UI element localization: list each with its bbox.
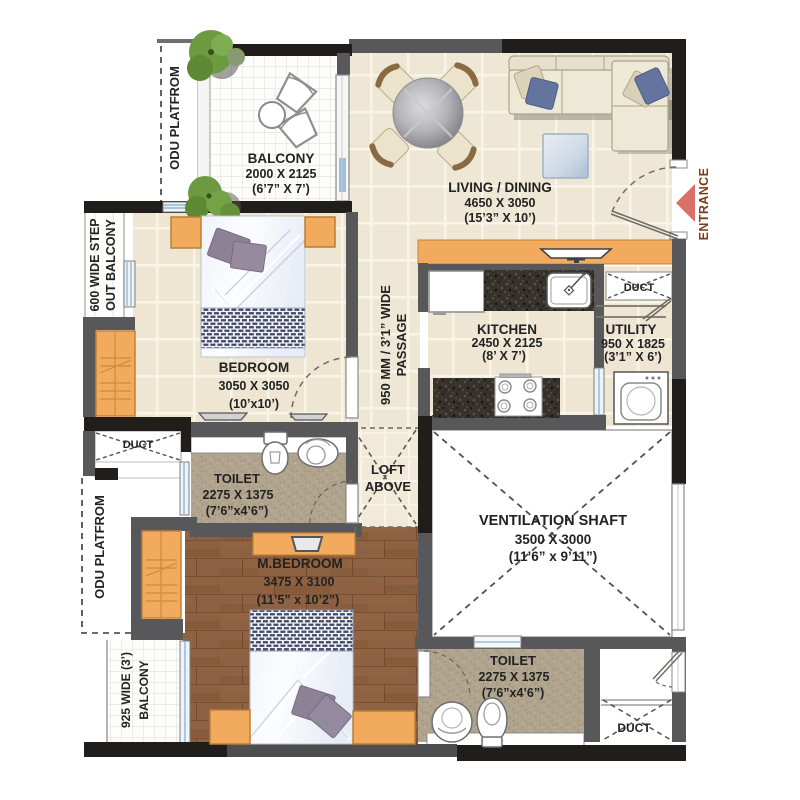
svg-text:TOILET: TOILET <box>214 471 260 486</box>
svg-text:(7’6”x4’6”): (7’6”x4’6”) <box>482 686 545 700</box>
svg-text:UTILITY: UTILITY <box>606 322 657 337</box>
svg-text:(11’6” x 9’11”): (11’6” x 9’11”) <box>509 549 598 564</box>
svg-text:950 X 1825: 950 X 1825 <box>601 337 665 351</box>
svg-text:DUCT: DUCT <box>123 439 154 451</box>
svg-text:PASSAGE: PASSAGE <box>394 313 409 376</box>
svg-text:LIVING / DINING: LIVING / DINING <box>448 180 552 195</box>
svg-text:OUT BALCONY: OUT BALCONY <box>104 219 118 311</box>
svg-text:(3’1” X 6’): (3’1” X 6’) <box>604 350 662 364</box>
svg-text:(7’6”x4’6”): (7’6”x4’6”) <box>206 504 269 518</box>
svg-text:4650 X 3050: 4650 X 3050 <box>465 196 536 210</box>
svg-text:ODU PLATFROM: ODU PLATFROM <box>92 495 107 599</box>
svg-text:ENTRANCE: ENTRANCE <box>697 168 711 241</box>
svg-text:(10’x10’): (10’x10’) <box>229 397 279 411</box>
svg-text:600 WIDE STEP: 600 WIDE STEP <box>88 218 102 311</box>
svg-text:(6’7” X 7’): (6’7” X 7’) <box>252 182 310 196</box>
svg-text:BALCONY: BALCONY <box>248 151 315 166</box>
svg-text:2450 X 2125: 2450 X 2125 <box>472 336 543 350</box>
svg-text:LOFT: LOFT <box>371 462 405 477</box>
svg-text:DUCT: DUCT <box>624 282 655 294</box>
svg-text:2000 X 2125: 2000 X 2125 <box>246 167 317 181</box>
svg-text:(11’5” x 10’2”): (11’5” x 10’2”) <box>257 593 340 607</box>
svg-text:950 MM / 3’1” WIDE: 950 MM / 3’1” WIDE <box>378 285 393 405</box>
svg-text:(8’ X 7’): (8’ X 7’) <box>482 349 526 363</box>
svg-text:3500 X 3000: 3500 X 3000 <box>515 532 592 547</box>
svg-text:925 WIDE (3’): 925 WIDE (3’) <box>119 652 133 728</box>
svg-text:ABOVE: ABOVE <box>365 479 412 494</box>
svg-text:BEDROOM: BEDROOM <box>219 360 290 375</box>
svg-text:ODU PLATFROM: ODU PLATFROM <box>167 66 182 170</box>
svg-text:3050 X 3050: 3050 X 3050 <box>219 379 290 393</box>
svg-text:BALCONY: BALCONY <box>137 660 151 719</box>
svg-text:2275 X 1375: 2275 X 1375 <box>479 670 550 684</box>
svg-text:3475 X 3100: 3475 X 3100 <box>264 575 335 589</box>
svg-text:TOILET: TOILET <box>490 653 536 668</box>
svg-text:KITCHEN: KITCHEN <box>477 322 537 337</box>
svg-text:VENTILATION SHAFT: VENTILATION SHAFT <box>479 513 627 529</box>
svg-text:DUCT: DUCT <box>617 721 651 735</box>
svg-text:(15’3” X 10’): (15’3” X 10’) <box>464 211 536 225</box>
svg-text:M.BEDROOM: M.BEDROOM <box>257 556 343 571</box>
svg-text:2275 X 1375: 2275 X 1375 <box>203 488 274 502</box>
